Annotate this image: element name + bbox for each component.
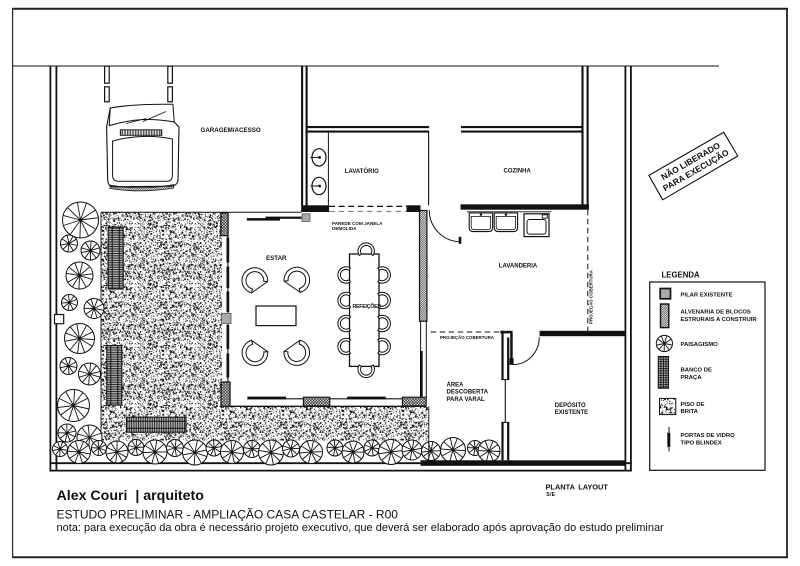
svg-text:ESTUDO PRELIMINAR - AMPLIAÇÃO: ESTUDO PRELIMINAR - AMPLIAÇÃO CASA CASTE…: [57, 508, 399, 522]
svg-text:COZINHA: COZINHA: [504, 169, 532, 175]
svg-text:BRITA: BRITA: [681, 409, 699, 415]
svg-text:EXISTENTE: EXISTENTE: [555, 410, 588, 416]
svg-text:TIPO BLINDEX: TIPO BLINDEX: [681, 441, 722, 447]
svg-text:PILAR EXISTENTE: PILAR EXISTENTE: [681, 292, 733, 298]
svg-text:PROJEÇÃO COBERTURA: PROJEÇÃO COBERTURA: [440, 335, 495, 340]
svg-text:PORTAS DE VIDRO: PORTAS DE VIDRO: [681, 433, 736, 439]
svg-text:PROJEÇÃO COBERTURA: PROJEÇÃO COBERTURA: [589, 269, 594, 324]
svg-text:ESTAR: ESTAR: [266, 255, 287, 262]
svg-text:ESTRURAIS A CONSTRUIR: ESTRURAIS A CONSTRUIR: [681, 317, 758, 323]
svg-text:PRAÇA: PRAÇA: [681, 375, 703, 381]
svg-text:DESCOBERTA: DESCOBERTA: [447, 390, 489, 396]
svg-text:LAVATÓRIO: LAVATÓRIO: [345, 167, 379, 175]
svg-text:DEPÓSITO: DEPÓSITO: [555, 401, 586, 409]
svg-text:S/E: S/E: [546, 492, 555, 498]
svg-text:PISO DE: PISO DE: [681, 402, 705, 408]
svg-text:BANCO DE: BANCO DE: [681, 368, 712, 374]
svg-text:ÁREA: ÁREA: [447, 382, 465, 389]
svg-text:PAISAGISMO: PAISAGISMO: [681, 342, 719, 348]
svg-text:nota: para execução da obra é: nota: para execução da obra é necessário…: [57, 522, 665, 534]
svg-text:ALVENARIA DE BLOCOS: ALVENARIA DE BLOCOS: [681, 310, 751, 316]
svg-text:GARAGEM/ACESSO: GARAGEM/ACESSO: [201, 127, 261, 134]
svg-text:PARA VARAL: PARA VARAL: [447, 397, 486, 403]
svg-text:LAVANDERIA: LAVANDERIA: [499, 263, 538, 269]
svg-text:Alex Couri | arquiteto: Alex Couri | arquiteto: [57, 488, 205, 504]
svg-text:PLANTA LAYOUT: PLANTA LAYOUT: [546, 482, 609, 491]
svg-text:REFEIÇÕES: REFEIÇÕES: [353, 303, 382, 310]
svg-text:DEMOLIDA: DEMOLIDA: [332, 226, 357, 231]
svg-text:LEGENDA: LEGENDA: [662, 271, 700, 280]
